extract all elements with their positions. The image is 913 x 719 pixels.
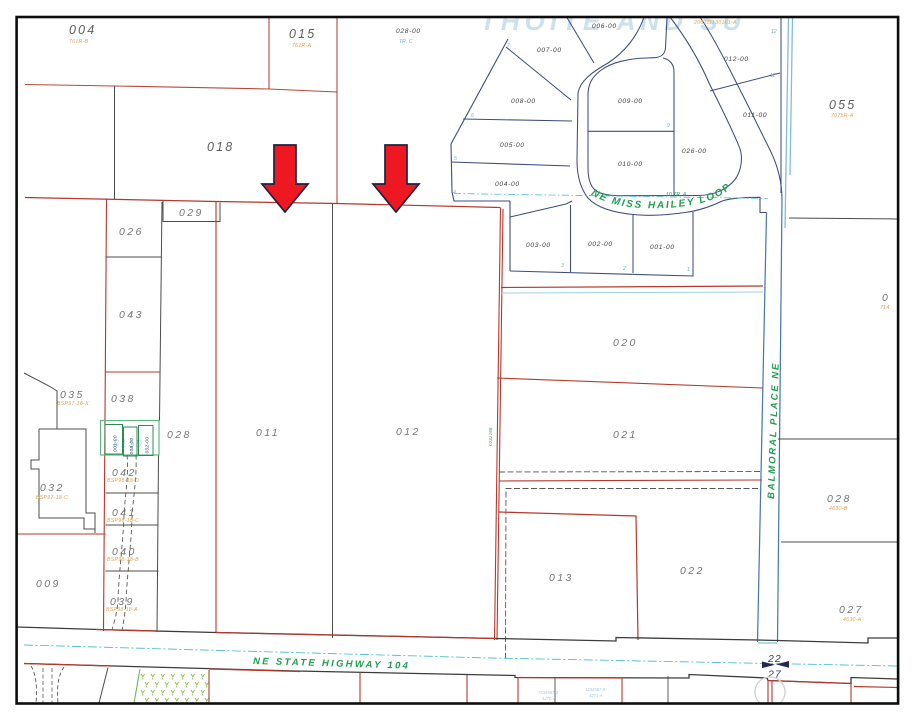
svg-text:4630-B: 4630-B [829,506,848,512]
svg-text:012-00: 012-00 [724,56,749,63]
svg-text:026: 026 [119,226,144,238]
svg-text:043: 043 [119,309,144,321]
svg-text:015: 015 [289,27,316,41]
svg-text:4270-4: 4270-4 [542,696,556,701]
svg-text:761R-A: 761R-A [292,43,312,49]
svg-text:1234567-8: 1234567-8 [585,687,606,692]
svg-text:7: 7 [507,43,510,49]
svg-text:761R-B: 761R-B [69,39,89,45]
svg-text:004-00: 004-00 [495,181,520,188]
svg-text:200111130161-A: 200111130161-A [693,20,737,26]
svg-text:009: 009 [36,578,61,590]
svg-text:0232188: 0232188 [488,427,493,446]
svg-text:4630-A: 4630-A [843,617,862,623]
svg-text:055: 055 [829,98,856,112]
svg-text:714: 714 [880,305,890,311]
svg-text:013: 013 [549,572,574,584]
svg-text:028: 028 [827,493,852,505]
svg-text:022: 022 [680,565,705,577]
svg-text:008-00: 008-00 [129,438,135,455]
svg-text:22: 22 [767,653,782,665]
svg-text:3: 3 [561,263,564,269]
svg-text:BSP98-18-A: BSP98-18-A [106,607,138,613]
svg-text:0: 0 [882,292,890,304]
svg-text:007-00: 007-00 [537,47,562,54]
svg-text:BSP98-18-D: BSP98-18-D [107,478,139,484]
svg-text:001-00: 001-00 [113,435,119,452]
svg-text:12: 12 [771,29,777,35]
svg-text:7075R-A: 7075R-A [831,113,854,119]
svg-text:27: 27 [767,669,782,681]
svg-text:5: 5 [454,156,457,162]
svg-text:BSP97-16-X: BSP97-16-X [57,401,89,407]
svg-text:003-00: 003-00 [526,242,551,249]
svg-text:009-00: 009-00 [618,98,643,105]
svg-text:008-00: 008-00 [511,98,536,105]
svg-text:011-00: 011-00 [743,112,767,119]
svg-text:012: 012 [396,426,421,438]
svg-text:2: 2 [622,266,626,272]
svg-text:021: 021 [613,429,638,441]
svg-text:032: 032 [40,482,65,494]
svg-text:4271-A: 4271-A [589,693,603,698]
svg-text:020: 020 [613,337,638,349]
svg-text:11: 11 [770,73,775,79]
svg-text:6: 6 [471,113,474,119]
svg-text:035: 035 [60,389,85,401]
svg-text:018: 018 [207,140,234,154]
svg-text:002-00: 002-00 [588,241,613,248]
svg-text:028-00: 028-00 [396,28,421,35]
svg-text:TR. C: TR. C [399,39,413,45]
svg-text:10 TR. A: 10 TR. A [666,192,687,198]
svg-text:002-00: 002-00 [145,437,151,454]
svg-text:011: 011 [256,427,280,439]
svg-text:004: 004 [69,23,96,37]
svg-text:001-00: 001-00 [650,244,675,251]
svg-text:029: 029 [179,207,204,219]
svg-text:4: 4 [453,190,456,196]
svg-text:006-00: 006-00 [592,23,617,30]
svg-text:010-00: 010-00 [618,161,643,168]
svg-text:026-00: 026-00 [682,148,707,155]
svg-text:005-00: 005-00 [500,142,525,149]
svg-text:BSP97-18-C: BSP97-18-C [36,495,68,501]
svg-text:BSP98-18-B: BSP98-18-B [107,557,139,563]
svg-text:7234567-8: 7234567-8 [538,690,559,695]
svg-text:038: 038 [111,393,136,405]
svg-text:028: 028 [167,429,192,441]
svg-text:9: 9 [667,123,670,129]
svg-text:027: 027 [839,604,864,616]
svg-text:1: 1 [687,267,690,273]
svg-text:BSP98-18-C: BSP98-18-C [107,518,139,524]
